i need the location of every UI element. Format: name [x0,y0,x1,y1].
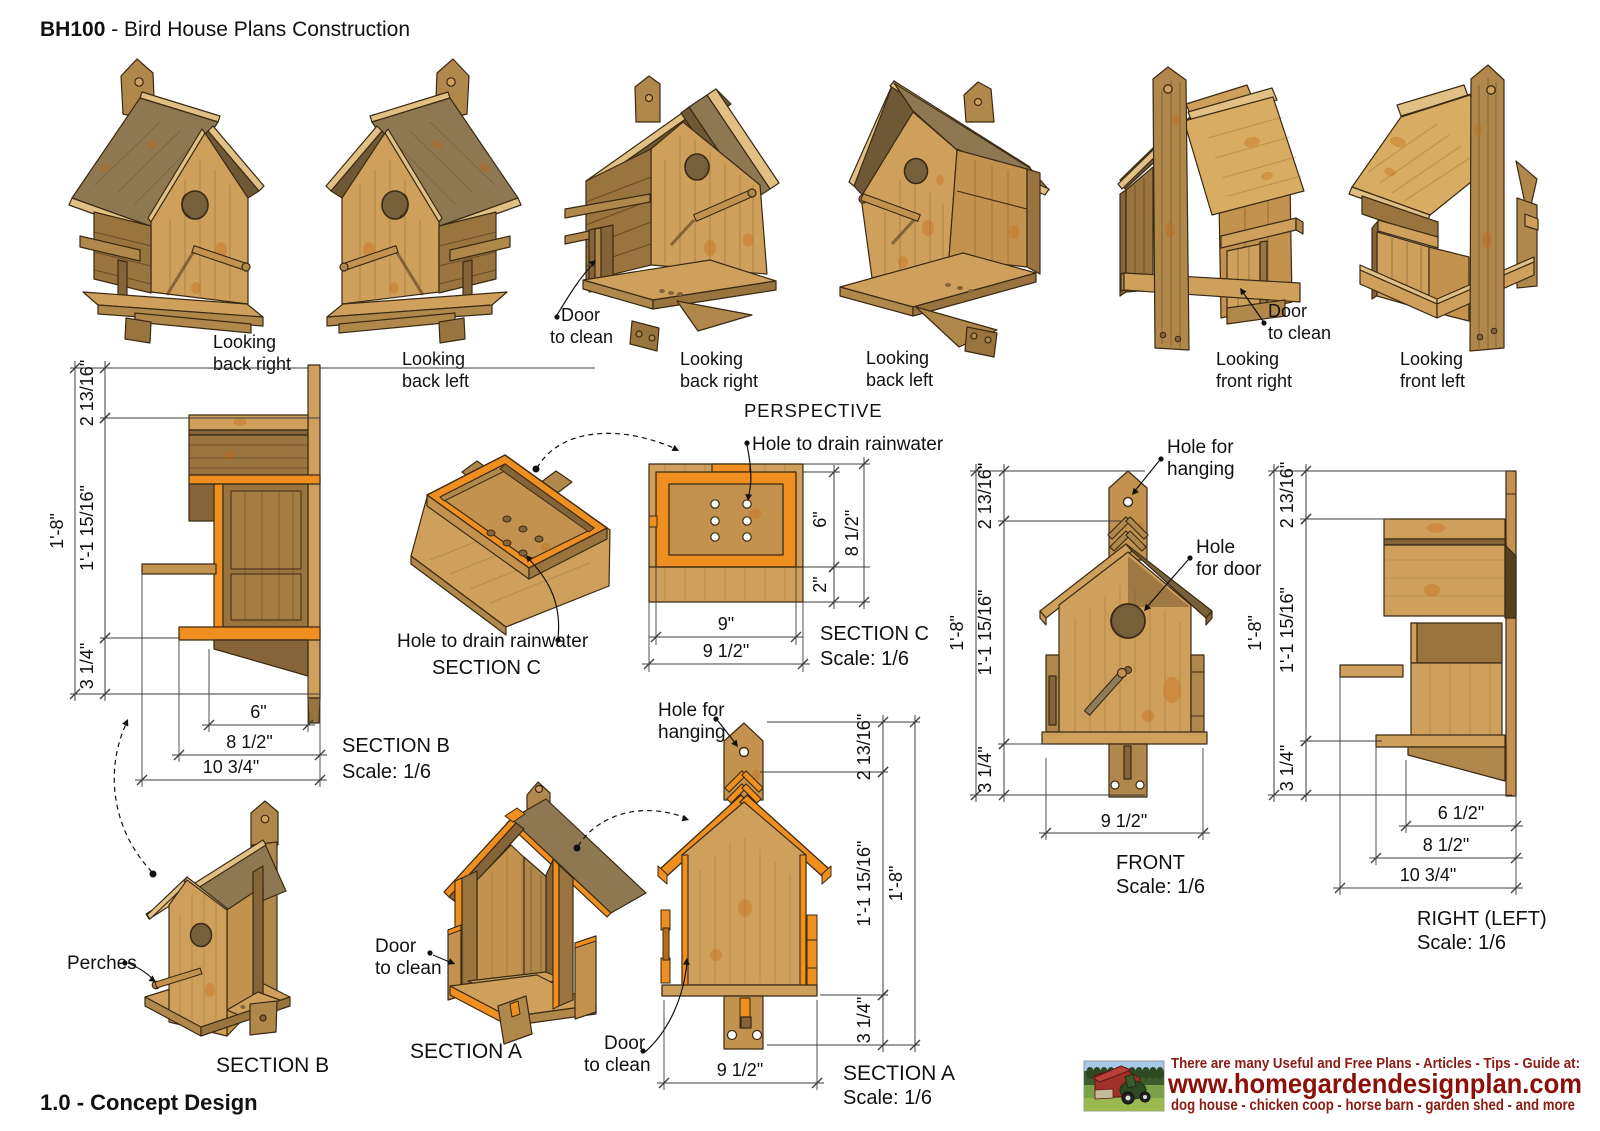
svg-text:Scale: 1/6: Scale: 1/6 [1417,932,1506,954]
svg-text:1'-8": 1'-8" [1245,615,1265,651]
svg-text:back right: back right [213,354,291,374]
svg-text:3 1/4": 3 1/4" [854,997,874,1043]
svg-text:1.0 - Concept Design: 1.0 - Concept Design [40,1090,258,1115]
svg-text:Hole for: Hole for [1167,437,1234,458]
svg-text:to clean: to clean [584,1055,651,1076]
svg-text:Door: Door [561,305,600,325]
svg-text:front right: front right [1216,371,1292,391]
svg-text:6": 6" [810,511,830,527]
svg-text:Hole to drain rainwater: Hole to drain rainwater [752,434,944,455]
svg-text:Scale: 1/6: Scale: 1/6 [342,761,431,783]
svg-text:1'-1 15/16": 1'-1 15/16" [975,590,995,676]
svg-text:9 1/2": 9 1/2" [1101,811,1147,831]
svg-text:Looking: Looking [1400,349,1463,369]
svg-text:RIGHT (LEFT): RIGHT (LEFT) [1417,908,1547,930]
svg-text:to clean: to clean [1268,323,1331,343]
svg-text:Hole: Hole [1196,537,1235,558]
svg-text:BH100 - Bird House Plans Const: BH100 - Bird House Plans Construction [40,18,410,41]
svg-text:for door: for door [1196,559,1262,580]
svg-text:Door: Door [1268,301,1307,321]
svg-text:1'-8": 1'-8" [47,513,67,549]
svg-text:9 1/2": 9 1/2" [717,1060,763,1080]
svg-text:SECTION B: SECTION B [342,735,450,757]
svg-text:1'-8": 1'-8" [947,615,967,651]
svg-text:back left: back left [866,370,933,390]
svg-text:1'-1 15/16": 1'-1 15/16" [1277,587,1297,673]
svg-text:10 3/4": 10 3/4" [203,757,259,777]
svg-text:SECTION A: SECTION A [843,1062,955,1085]
svg-text:www.homegardendesignplan.com: www.homegardendesignplan.com [1167,1068,1582,1099]
svg-text:8 1/2": 8 1/2" [1423,835,1469,855]
svg-text:3 1/4": 3 1/4" [1277,745,1297,791]
svg-text:to clean: to clean [550,327,613,347]
svg-text:1'-8": 1'-8" [886,866,906,902]
svg-text:10 3/4": 10 3/4" [1400,865,1456,885]
svg-text:3 1/4": 3 1/4" [77,643,97,689]
svg-text:Looking: Looking [402,349,465,369]
svg-text:3 1/4": 3 1/4" [975,746,995,792]
svg-text:2": 2" [810,576,830,592]
svg-text:back left: back left [402,371,469,391]
svg-text:Scale: 1/6: Scale: 1/6 [843,1087,932,1109]
svg-text:2 13/16": 2 13/16" [1277,462,1297,528]
svg-text:Looking: Looking [866,348,929,368]
svg-text:2 13/16": 2 13/16" [975,463,995,529]
svg-text:9 1/2": 9 1/2" [703,641,749,661]
svg-text:6": 6" [250,702,266,722]
svg-text:SECTION C: SECTION C [432,657,541,679]
svg-text:8 1/2": 8 1/2" [226,732,272,752]
svg-text:9": 9" [718,614,734,634]
svg-text:Door: Door [375,936,417,957]
svg-text:2 13/16": 2 13/16" [854,714,874,780]
svg-text:Door: Door [604,1033,646,1054]
svg-text:dog house - chicken coop - hor: dog house - chicken coop - horse barn - … [1171,1097,1575,1114]
svg-text:back right: back right [680,371,758,391]
svg-text:Scale: 1/6: Scale: 1/6 [1116,876,1205,898]
svg-text:front left: front left [1400,371,1465,391]
svg-text:Looking: Looking [213,332,276,352]
svg-text:2 13/16": 2 13/16" [77,360,97,426]
svg-text:Looking: Looking [680,349,743,369]
svg-text:1'-1 15/16": 1'-1 15/16" [854,841,874,927]
svg-text:8 1/2": 8 1/2" [842,510,862,556]
svg-text:hanging: hanging [1167,459,1235,480]
svg-text:PERSPECTIVE: PERSPECTIVE [744,400,882,421]
svg-text:SECTION A: SECTION A [410,1040,522,1063]
svg-text:to clean: to clean [375,958,442,979]
svg-text:hanging: hanging [658,722,726,743]
svg-text:1'-1 15/16": 1'-1 15/16" [77,485,97,571]
svg-text:SECTION B: SECTION B [216,1054,329,1077]
svg-text:6 1/2": 6 1/2" [1438,803,1484,823]
svg-text:Looking: Looking [1216,349,1279,369]
svg-text:SECTION C: SECTION C [820,623,929,645]
svg-text:Scale: 1/6: Scale: 1/6 [820,648,909,670]
svg-text:FRONT: FRONT [1116,852,1185,874]
